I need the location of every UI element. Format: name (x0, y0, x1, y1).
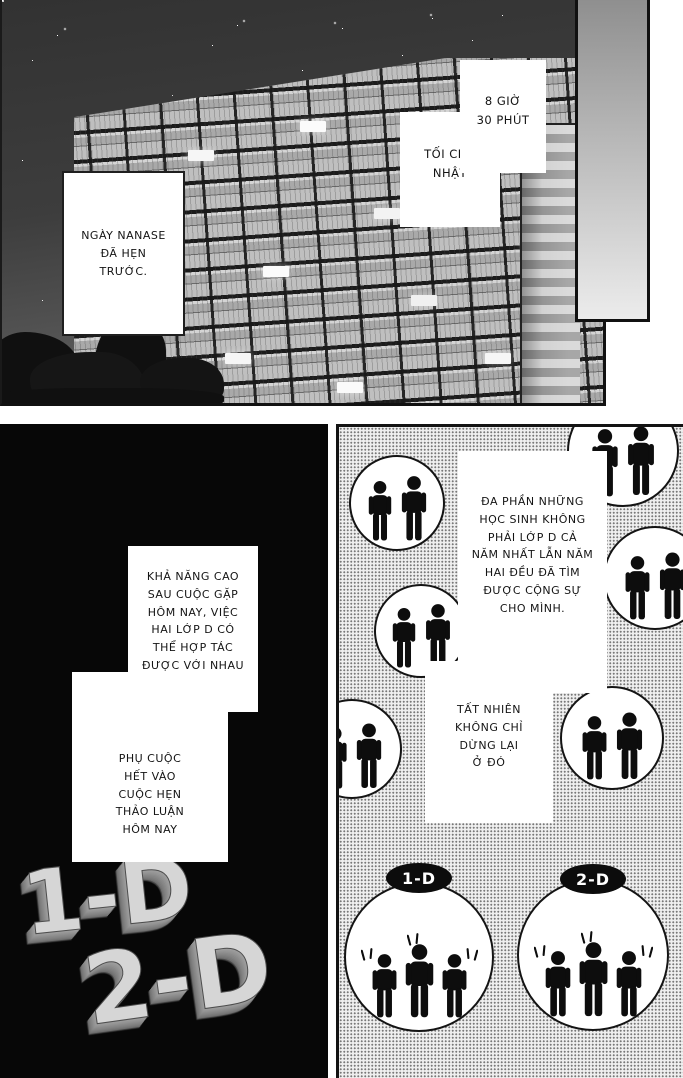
pair-circle (349, 455, 445, 551)
surprise-marks-icon (534, 943, 550, 959)
person-icon (388, 607, 420, 669)
time-caption-box: 8 GIỜ 30 PHÚT (460, 60, 546, 173)
group-circle-2d (517, 879, 669, 1031)
figure (401, 943, 438, 1019)
pair-circle (336, 699, 402, 799)
panel-students: ĐA PHẦN NHỮNG HỌC SINH KHÔNG PHẢI LỚP D … (336, 424, 683, 1078)
person-icon (353, 722, 385, 790)
class-badge-1d: 1-D (386, 863, 452, 893)
person-icon (438, 953, 471, 1019)
surprise-marks-icon (407, 931, 423, 947)
person-icon (613, 711, 646, 781)
person-icon (364, 480, 396, 542)
surprise-marks-icon (462, 946, 478, 962)
person-icon (401, 943, 438, 1019)
manga-page: TỐI CHỦ NHẬT 8 GIỜ 30 PHÚT NGÀY NANASE Đ… (0, 0, 683, 1078)
figure (575, 941, 612, 1018)
person-icon (368, 953, 401, 1019)
panel-class-labels: 1-D KHẢ NĂNG CAO SAU CUỘC GẶP HÔM NAY, V… (0, 424, 328, 1078)
person-icon (624, 424, 658, 498)
panel-night-building: TỐI CHỦ NHẬT 8 GIỜ 30 PHÚT NGÀY NANASE Đ… (0, 0, 606, 406)
ofcourse-caption-box: TẤT NHIÊN KHÔNG CHỈ DỪNG LẠI Ở ĐÓ (425, 661, 553, 823)
stars-icon (2, 0, 4, 2)
surprise-marks-icon (581, 929, 597, 945)
pair-circle (603, 526, 683, 630)
surprise-marks-icon (361, 946, 377, 962)
person-icon (575, 941, 612, 1018)
class-badge-2d: 2-D (560, 864, 626, 894)
nanase-caption-box: NGÀY NANASE ĐÃ HẸN TRƯỚC. (62, 171, 185, 336)
figure (368, 953, 401, 1019)
person-icon (336, 726, 351, 790)
person-icon (612, 950, 646, 1018)
person-icon (578, 715, 611, 781)
surprise-marks-icon (637, 943, 653, 959)
tree-icon (0, 388, 224, 406)
person-icon (398, 475, 430, 542)
figure (438, 953, 471, 1019)
person-icon (422, 603, 454, 669)
lit-windows (114, 92, 140, 103)
person-icon (621, 555, 654, 621)
figure (541, 950, 575, 1018)
pair-circle (560, 686, 664, 790)
depends-caption-box: PHỤ CUỘC HẾT VÀO CUỘC HẸN THẢO LUẬN HÔM … (72, 672, 228, 862)
person-icon (541, 950, 575, 1018)
person-icon (656, 551, 683, 621)
figure (612, 950, 646, 1018)
gradient-side-panel (575, 0, 650, 322)
group-circle-1d (344, 882, 494, 1032)
students-caption-box: ĐA PHẦN NHỮNG HỌC SINH KHÔNG PHẢI LỚP D … (458, 451, 607, 693)
